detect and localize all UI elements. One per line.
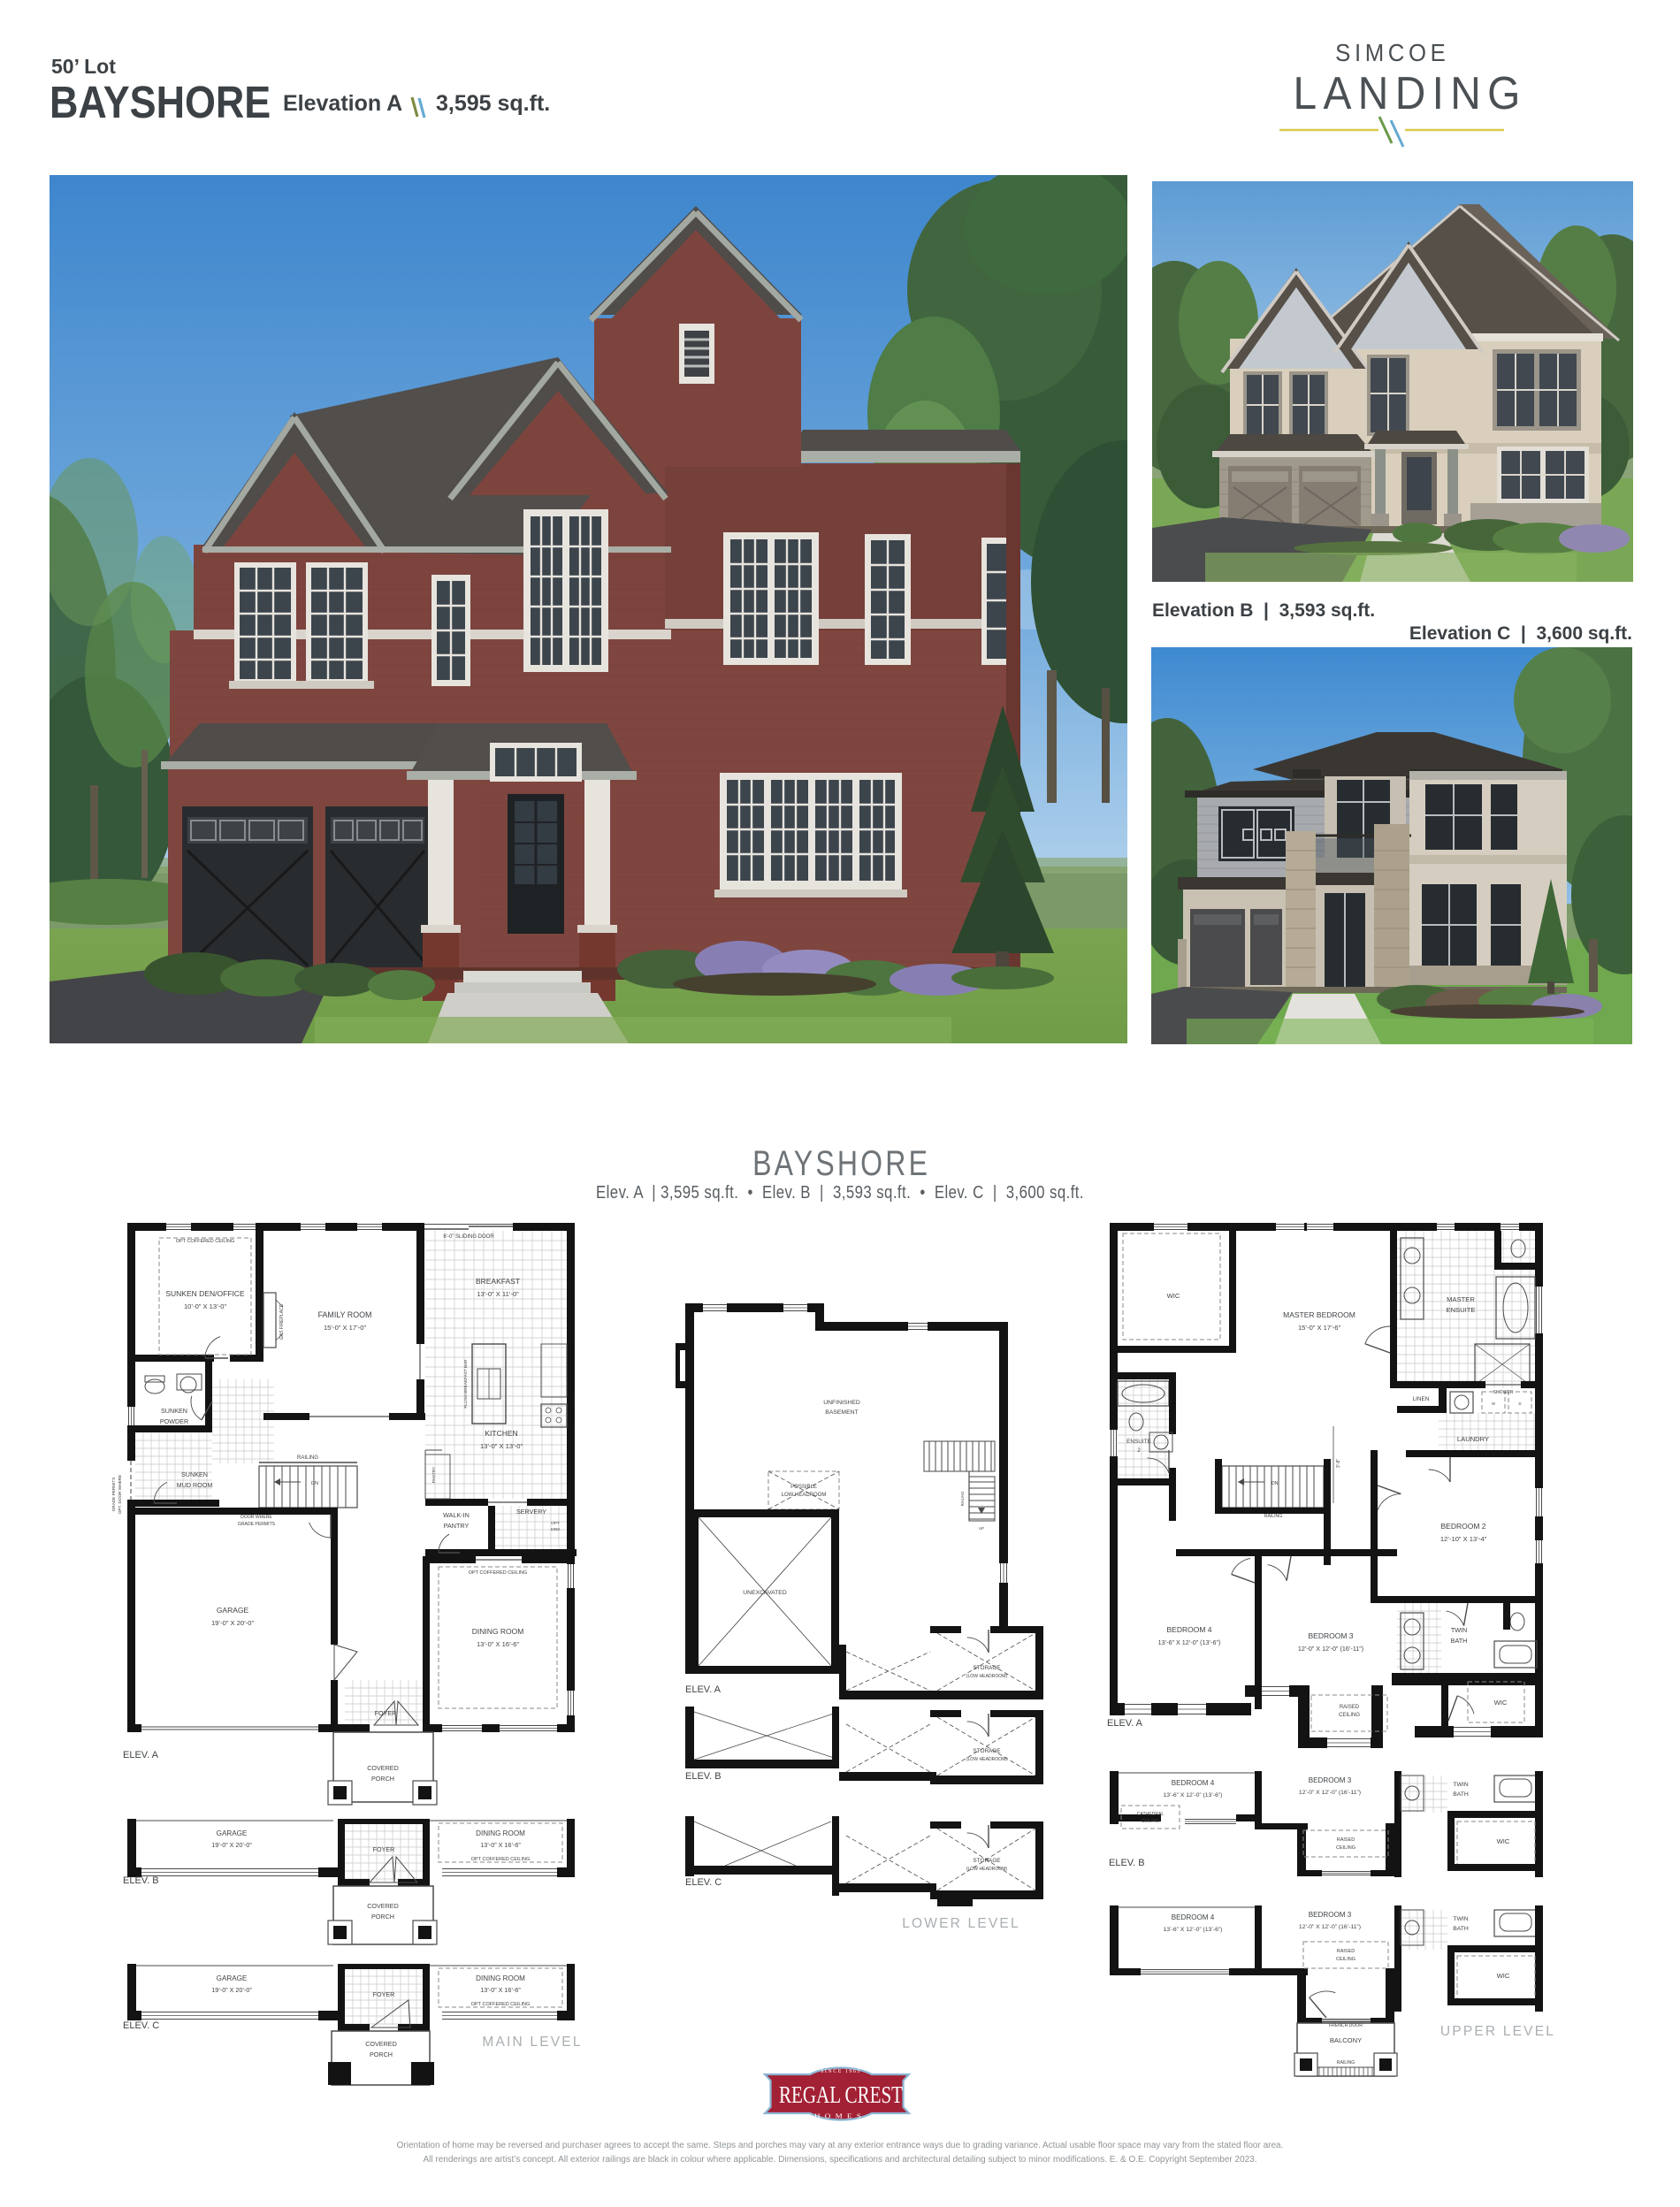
svg-text:GRADE PERMITS: GRADE PERMITS	[238, 1522, 276, 1527]
svg-text:ENSUITE: ENSUITE	[1447, 1306, 1476, 1314]
svg-text:3’-8”: 3’-8”	[1336, 1459, 1341, 1468]
svg-text:PANTRY: PANTRY	[431, 1466, 436, 1483]
svg-text:OPT COFFERED CEILING: OPT COFFERED CEILING	[471, 1857, 531, 1862]
svg-text:SINK: SINK	[551, 1527, 561, 1531]
svg-text:BEDROOM 3: BEDROOM 3	[1309, 1911, 1352, 1919]
svg-text:(LOW HEADROOM): (LOW HEADROOM)	[966, 1674, 1008, 1679]
svg-text:OPT: OPT	[551, 1521, 560, 1525]
svg-text:13’-0” X 13’-0”: 13’-0” X 13’-0”	[480, 1442, 523, 1450]
svg-text:UP: UP	[979, 1526, 984, 1531]
svg-text:BEDROOM 4: BEDROOM 4	[1172, 1779, 1215, 1787]
svg-text:12’-10” X 13’-4”: 12’-10” X 13’-4”	[1440, 1535, 1487, 1543]
svg-text:GARAGE: GARAGE	[217, 1829, 248, 1837]
svg-text:POSSIBLE: POSSIBLE	[790, 1485, 817, 1490]
svg-text:ELEV. C: ELEV. C	[123, 2020, 159, 2031]
svg-text:CEILING: CEILING	[1336, 1845, 1355, 1851]
svg-text:KITCHEN: KITCHEN	[485, 1429, 517, 1438]
svg-text:13’-6” X 12’-0” (13’-6”): 13’-6” X 12’-0” (13’-6”)	[1164, 1927, 1223, 1933]
svg-text:LOWER LEVEL: LOWER LEVEL	[902, 1916, 1020, 1931]
svg-text:PORCH: PORCH	[370, 2050, 393, 2058]
svg-text:BEDROOM 4: BEDROOM 4	[1166, 1625, 1211, 1634]
svg-text:FOYER: FOYER	[373, 1990, 395, 1998]
svg-text:W: W	[1492, 1401, 1495, 1406]
svg-text:BEDROOM 3: BEDROOM 3	[1309, 1776, 1352, 1784]
svg-text:DN: DN	[1271, 1481, 1279, 1486]
svg-text:10’-0” X 13’-0”: 10’-0” X 13’-0”	[184, 1302, 227, 1310]
svg-text:6’-0” SLIDING DOOR: 6’-0” SLIDING DOOR	[443, 1234, 494, 1240]
svg-text:ELEV. A: ELEV. A	[123, 1750, 159, 1760]
svg-text:WIC: WIC	[1497, 1837, 1510, 1845]
svg-text:WIC: WIC	[1494, 1699, 1508, 1707]
svg-text:BASEMENT: BASEMENT	[825, 1409, 858, 1416]
svg-text:SUNKEN DEN/OFFICE: SUNKEN DEN/OFFICE	[165, 1289, 245, 1298]
svg-text:REGAL CREST: REGAL CREST	[779, 2081, 903, 2108]
svg-text:FOYER: FOYER	[375, 1709, 397, 1717]
svg-text:D: D	[1518, 1401, 1521, 1406]
svg-text:POWDER: POWDER	[160, 1417, 188, 1425]
svg-text:ELEV. A: ELEV. A	[685, 1684, 722, 1695]
svg-text:19’-0” X 20’-0”: 19’-0” X 20’-0”	[211, 1841, 252, 1849]
svg-text:ELEV. C: ELEV. C	[685, 1877, 722, 1888]
svg-text:LOW HEADROOM: LOW HEADROOM	[782, 1493, 827, 1498]
svg-text:TWIN: TWIN	[1453, 1782, 1468, 1788]
svg-text:MAIN LEVEL: MAIN LEVEL	[482, 2035, 582, 2050]
svg-text:13’-0” X 11’-0”: 13’-0” X 11’-0”	[477, 1290, 519, 1298]
svg-text:2: 2	[1137, 1447, 1141, 1454]
svg-text:GRADE PERMITS: GRADE PERMITS	[111, 1478, 116, 1512]
svg-text:MUD ROOM: MUD ROOM	[177, 1481, 213, 1489]
svg-text:SINCE 1965: SINCE 1965	[821, 2069, 861, 2074]
svg-text:(LOW HEADROOM): (LOW HEADROOM)	[966, 1757, 1008, 1762]
svg-text:COVERED: COVERED	[367, 1902, 399, 1910]
svg-text:WIC: WIC	[1167, 1292, 1180, 1300]
svg-text:RAISED: RAISED	[1337, 1837, 1355, 1843]
svg-text:SUNKEN: SUNKEN	[161, 1407, 187, 1415]
svg-text:15’-0” X 17’-6”: 15’-0” X 17’-6”	[1298, 1324, 1341, 1332]
svg-text:12’-0” X 12’-0” (16’-11”): 12’-0” X 12’-0” (16’-11”)	[1298, 1645, 1363, 1653]
svg-text:13’-6” X 12’-0” (13’-6”): 13’-6” X 12’-0” (13’-6”)	[1164, 1792, 1223, 1798]
svg-text:COVERED: COVERED	[367, 1764, 399, 1772]
svg-text:COVERED: COVERED	[365, 2040, 397, 2048]
svg-text:13’-0” X 16’-6”: 13’-0” X 16’-6”	[480, 1841, 521, 1849]
svg-text:13’-0” X 16’-6”: 13’-0” X 16’-6”	[480, 1986, 521, 1994]
svg-text:UNEXCAVATED: UNEXCAVATED	[743, 1590, 787, 1596]
svg-text:RAILING: RAILING	[297, 1455, 318, 1461]
svg-text:MASTER BEDROOM: MASTER BEDROOM	[1283, 1310, 1355, 1319]
svg-text:12’-0” X 12’-0” (16’-11”): 12’-0” X 12’-0” (16’-11”)	[1299, 1924, 1361, 1930]
svg-text:GARAGE: GARAGE	[217, 1606, 249, 1615]
svg-text:RAILING: RAILING	[960, 1492, 965, 1507]
svg-text:OPT. DOOR WHERE: OPT. DOOR WHERE	[118, 1475, 122, 1515]
svg-text:HOMES: HOMES	[814, 2113, 866, 2120]
svg-text:FRENCH DOOR: FRENCH DOOR	[1329, 2023, 1363, 2028]
svg-text:12’-0” X 12’-0” (16’-11”): 12’-0” X 12’-0” (16’-11”)	[1299, 1790, 1361, 1796]
svg-text:UPPER LEVEL: UPPER LEVEL	[1440, 2024, 1555, 2039]
svg-text:BEDROOM 4: BEDROOM 4	[1172, 1913, 1215, 1921]
svg-text:RAILING: RAILING	[1264, 1514, 1282, 1519]
svg-text:LAUNDRY: LAUNDRY	[1457, 1435, 1489, 1443]
svg-text:DINING ROOM: DINING ROOM	[476, 1974, 525, 1982]
svg-text:GARAGE: GARAGE	[217, 1974, 248, 1982]
svg-text:ENSUITE: ENSUITE	[1126, 1439, 1151, 1445]
svg-text:BREAKFAST: BREAKFAST	[476, 1277, 520, 1286]
svg-text:DINING ROOM: DINING ROOM	[476, 1829, 525, 1837]
svg-text:CEILING: CEILING	[1142, 1819, 1159, 1824]
svg-text:CEILING: CEILING	[1339, 1713, 1360, 1718]
svg-text:RAILING: RAILING	[1337, 2060, 1355, 2066]
svg-text:CATHEDRAL: CATHEDRAL	[1137, 1812, 1165, 1817]
svg-text:ELEV. B: ELEV. B	[685, 1771, 722, 1782]
svg-text:FAMILY ROOM: FAMILY ROOM	[318, 1310, 372, 1319]
svg-text:SERVERY: SERVERY	[516, 1508, 546, 1516]
svg-text:(LOW HEADROOM): (LOW HEADROOM)	[966, 1867, 1008, 1872]
svg-text:BEDROOM 3: BEDROOM 3	[1308, 1631, 1353, 1640]
svg-text:MASTER: MASTER	[1447, 1295, 1475, 1303]
svg-text:DOOR WHERE: DOOR WHERE	[241, 1515, 272, 1520]
svg-text:FLUSH BREAKFAST BAR: FLUSH BREAKFAST BAR	[463, 1359, 468, 1409]
svg-text:15’-0” X 17’-0”: 15’-0” X 17’-0”	[324, 1324, 367, 1332]
svg-text:ELEV. B: ELEV. B	[1109, 1858, 1145, 1868]
svg-text:DN: DN	[311, 1481, 318, 1486]
svg-text:19’-0” X 20’-0”: 19’-0” X 20’-0”	[211, 1619, 255, 1627]
svg-text:GAS FIREPLACE: GAS FIREPLACE	[279, 1303, 285, 1340]
svg-text:WIC: WIC	[1497, 1972, 1510, 1980]
svg-text:STORAGE: STORAGE	[973, 1665, 1000, 1671]
svg-text:BATH: BATH	[1453, 1926, 1469, 1932]
svg-text:13’-6” X 12’-0” (13’-6”): 13’-6” X 12’-0” (13’-6”)	[1158, 1638, 1221, 1646]
svg-text:RAISED: RAISED	[1340, 1705, 1360, 1710]
svg-text:CEILING: CEILING	[1336, 1957, 1355, 1962]
svg-text:DINING ROOM: DINING ROOM	[472, 1627, 524, 1636]
svg-text:BATH: BATH	[1453, 1791, 1469, 1798]
svg-text:WALK-IN: WALK-IN	[443, 1511, 470, 1519]
svg-text:RAISED: RAISED	[1337, 1949, 1355, 1954]
svg-text:FOYER: FOYER	[373, 1845, 395, 1853]
svg-text:BEDROOM 2: BEDROOM 2	[1440, 1522, 1485, 1531]
svg-text:BALCONY: BALCONY	[1330, 2036, 1362, 2044]
svg-text:PORCH: PORCH	[371, 1913, 394, 1921]
svg-text:UNFINISHED: UNFINISHED	[823, 1400, 860, 1406]
svg-text:OPT COFFERED CEILING: OPT COFFERED CEILING	[471, 2002, 531, 2007]
svg-text:BATH: BATH	[1451, 1637, 1468, 1645]
svg-text:13’-0” X 16’-6”: 13’-0” X 16’-6”	[477, 1640, 520, 1648]
svg-text:19’-0” X 20’-0”: 19’-0” X 20’-0”	[211, 1986, 252, 1994]
svg-text:PANTRY: PANTRY	[444, 1522, 470, 1530]
svg-text:PORCH: PORCH	[371, 1775, 394, 1783]
svg-text:ELEV. A: ELEV. A	[1107, 1718, 1143, 1729]
svg-text:ELEV. B: ELEV. B	[123, 1875, 159, 1886]
svg-text:TWIN: TWIN	[1453, 1916, 1468, 1922]
svg-text:OPT COFFERED CEILING: OPT COFFERED CEILING	[176, 1239, 235, 1244]
svg-text:TWIN: TWIN	[1451, 1626, 1467, 1634]
svg-text:SHOWER: SHOWER	[1493, 1390, 1514, 1395]
svg-text:LINEN: LINEN	[1413, 1396, 1430, 1402]
svg-text:STORAGE: STORAGE	[973, 1858, 1000, 1864]
svg-text:STORAGE: STORAGE	[973, 1748, 1000, 1754]
svg-text:SUNKEN: SUNKEN	[181, 1470, 208, 1478]
svg-text:OPT COFFERED CEILING: OPT COFFERED CEILING	[469, 1570, 528, 1576]
